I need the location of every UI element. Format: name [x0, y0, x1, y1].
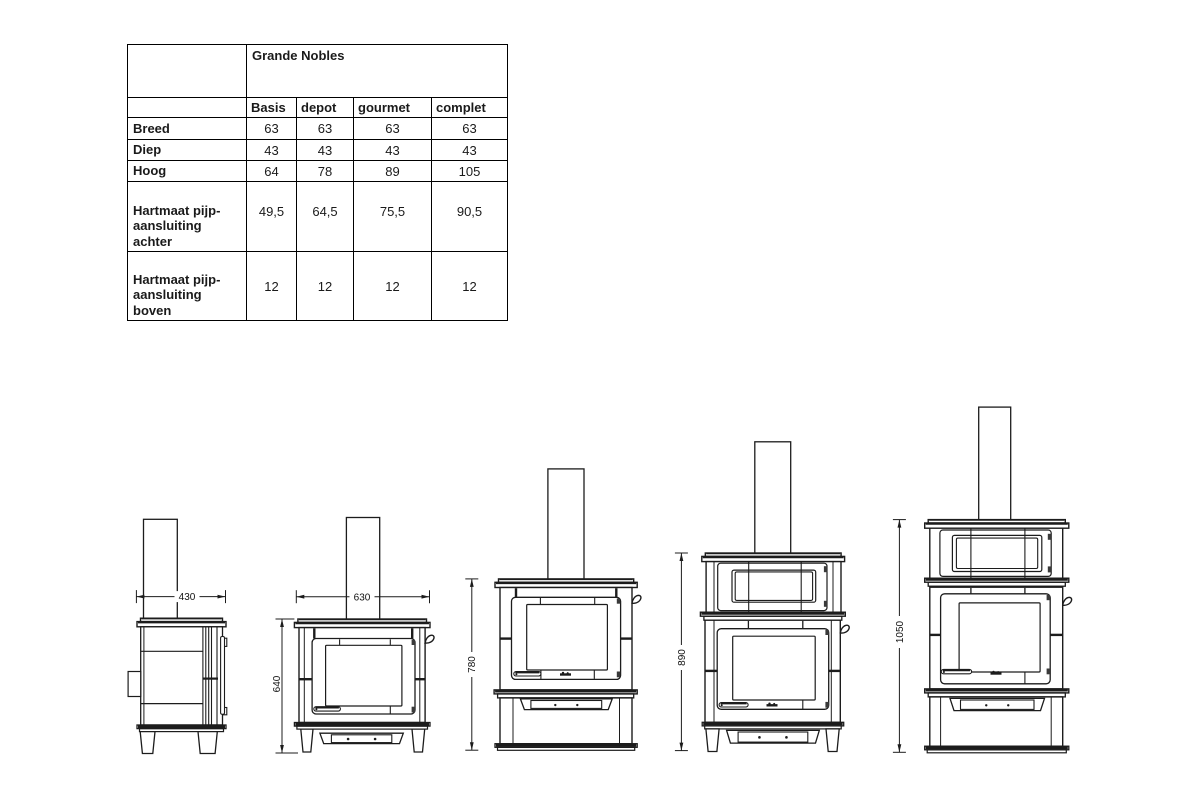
svg-text:640: 640: [272, 675, 283, 692]
svg-text:1050: 1050: [895, 620, 906, 643]
svg-text:630: 630: [354, 592, 371, 603]
svg-text:780: 780: [467, 656, 478, 673]
svg-text:430: 430: [179, 592, 196, 603]
svg-text:890: 890: [677, 649, 688, 666]
